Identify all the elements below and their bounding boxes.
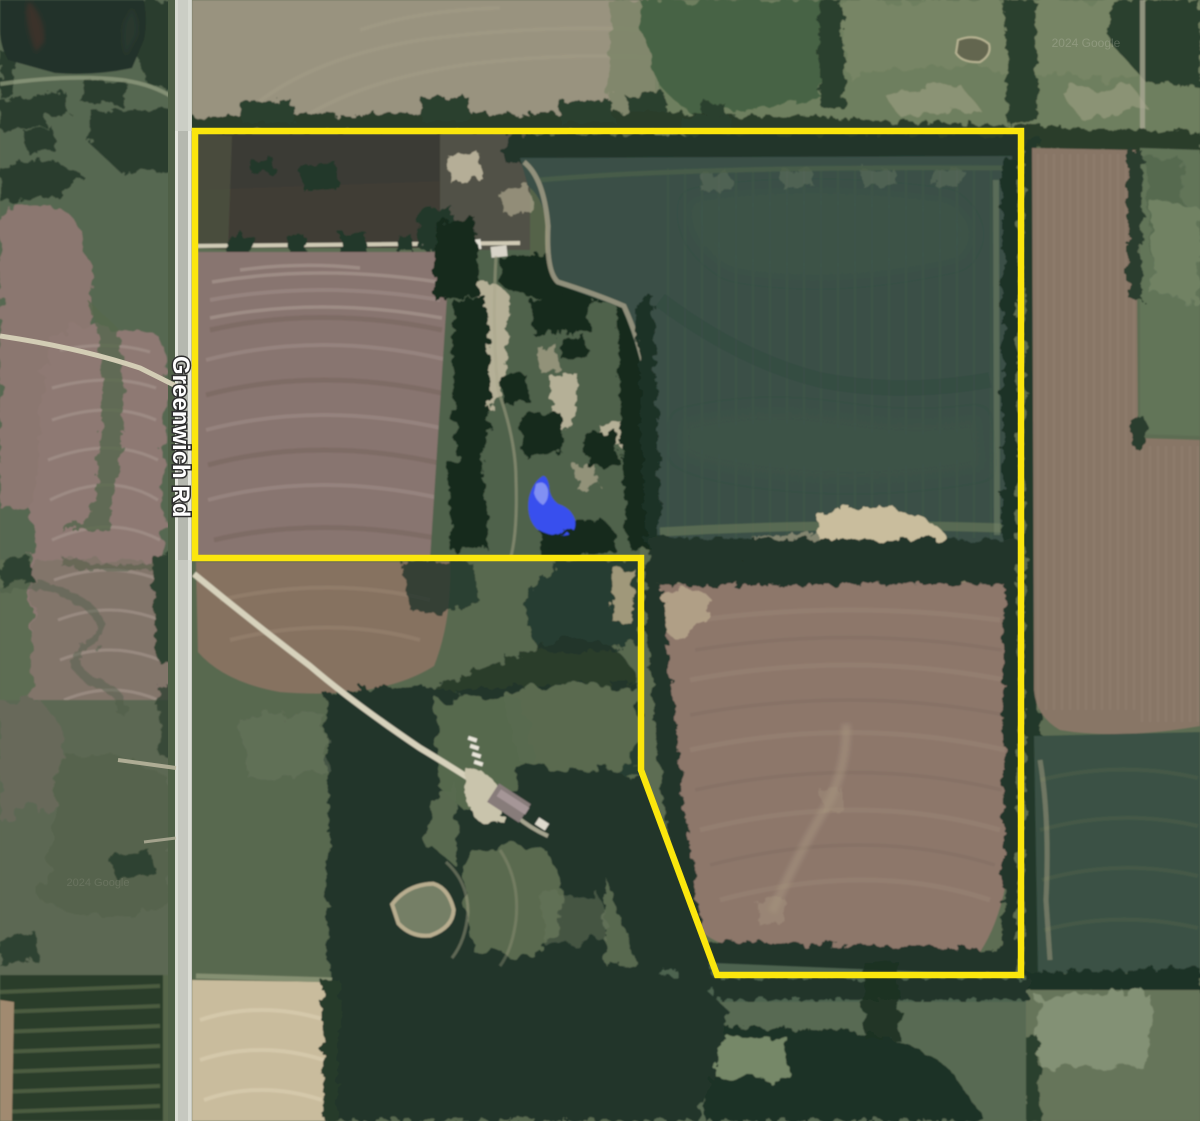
svg-text:Greenwich Rd: Greenwich Rd (167, 356, 194, 517)
svg-text:2024 Google: 2024 Google (1052, 36, 1121, 50)
svg-text:2024 Google: 2024 Google (67, 877, 130, 889)
